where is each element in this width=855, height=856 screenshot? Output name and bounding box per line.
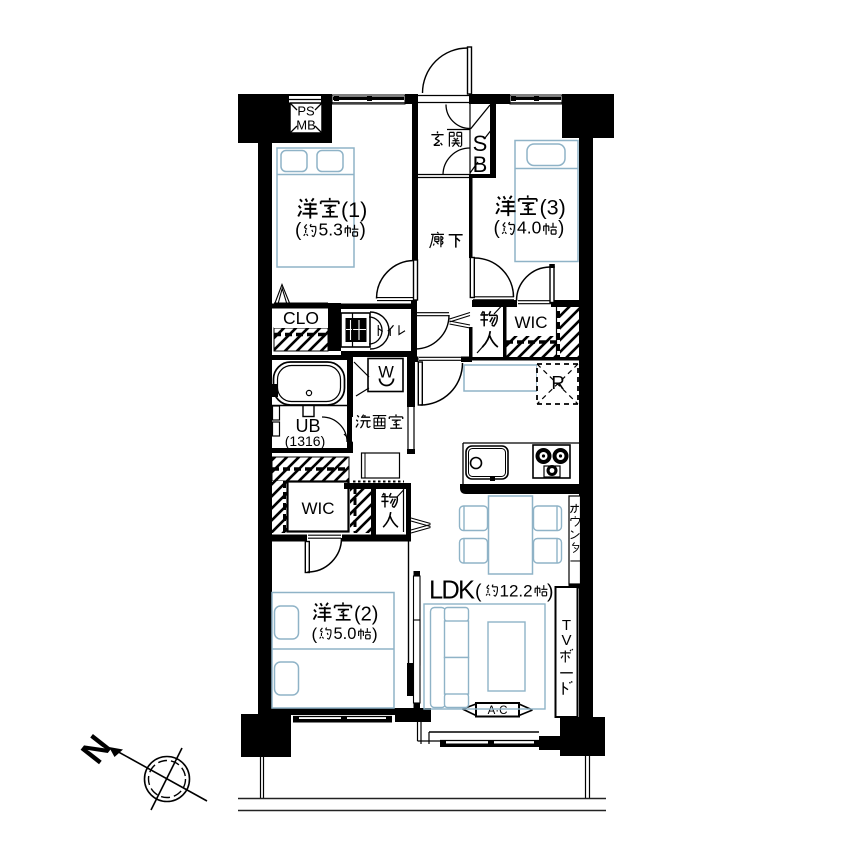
svg-text:CLO: CLO bbox=[283, 308, 319, 328]
svg-text:PS: PS bbox=[297, 104, 315, 119]
svg-text:(: ( bbox=[295, 220, 302, 241]
svg-text:WIC: WIC bbox=[514, 313, 547, 332]
svg-text:(1): (1) bbox=[341, 198, 367, 222]
svg-text:R: R bbox=[551, 372, 564, 393]
svg-text:(3): (3) bbox=[540, 196, 566, 220]
svg-text:B: B bbox=[473, 152, 488, 177]
svg-text:): ) bbox=[372, 625, 378, 644]
svg-text:(: ( bbox=[475, 581, 482, 603]
svg-text:5.0: 5.0 bbox=[334, 625, 357, 643]
svg-text:LDK: LDK bbox=[429, 577, 475, 605]
svg-text:5.3: 5.3 bbox=[319, 220, 343, 240]
svg-text:(: ( bbox=[312, 625, 318, 644]
svg-text:): ) bbox=[360, 220, 366, 241]
svg-text:4.0: 4.0 bbox=[517, 218, 542, 238]
svg-text:(1316): (1316) bbox=[285, 433, 325, 449]
svg-text:): ) bbox=[547, 581, 554, 603]
svg-text:WIC: WIC bbox=[301, 499, 334, 518]
svg-text:V: V bbox=[561, 632, 571, 649]
svg-text:12.2: 12.2 bbox=[500, 582, 533, 601]
svg-text:W: W bbox=[378, 364, 394, 382]
svg-text:(2): (2) bbox=[354, 604, 378, 626]
svg-text:A·C: A·C bbox=[488, 705, 508, 717]
svg-text:): ) bbox=[558, 218, 564, 239]
svg-text:(: ( bbox=[494, 218, 501, 239]
svg-text:MB: MB bbox=[296, 118, 316, 133]
